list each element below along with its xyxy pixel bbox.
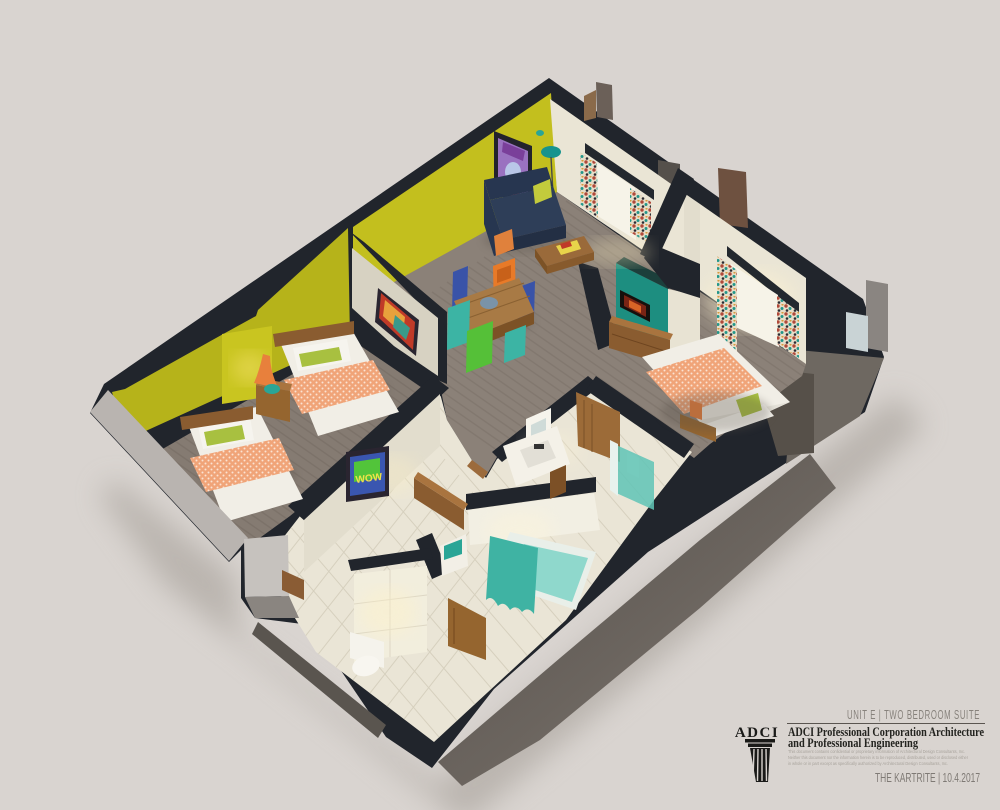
svg-text:This document contains confide: This document contains confidential or p… bbox=[788, 749, 965, 754]
svg-text:Neither this document nor the: Neither this document nor the informatio… bbox=[788, 755, 968, 760]
svg-text:in whole or in part except: in whole or in part except as specifical… bbox=[788, 761, 948, 766]
svg-text:UNIT E | TWO BEDROOM SUITE: UNIT E | TWO BEDROOM SUITE bbox=[847, 708, 980, 722]
svg-text:and Professional Engineering: and Professional Engineering bbox=[788, 736, 919, 750]
svg-text:ADCI: ADCI bbox=[735, 725, 779, 741]
svg-text:THE KARTRITE | 10.4.2017: THE KARTRITE | 10.4.2017 bbox=[875, 770, 980, 785]
